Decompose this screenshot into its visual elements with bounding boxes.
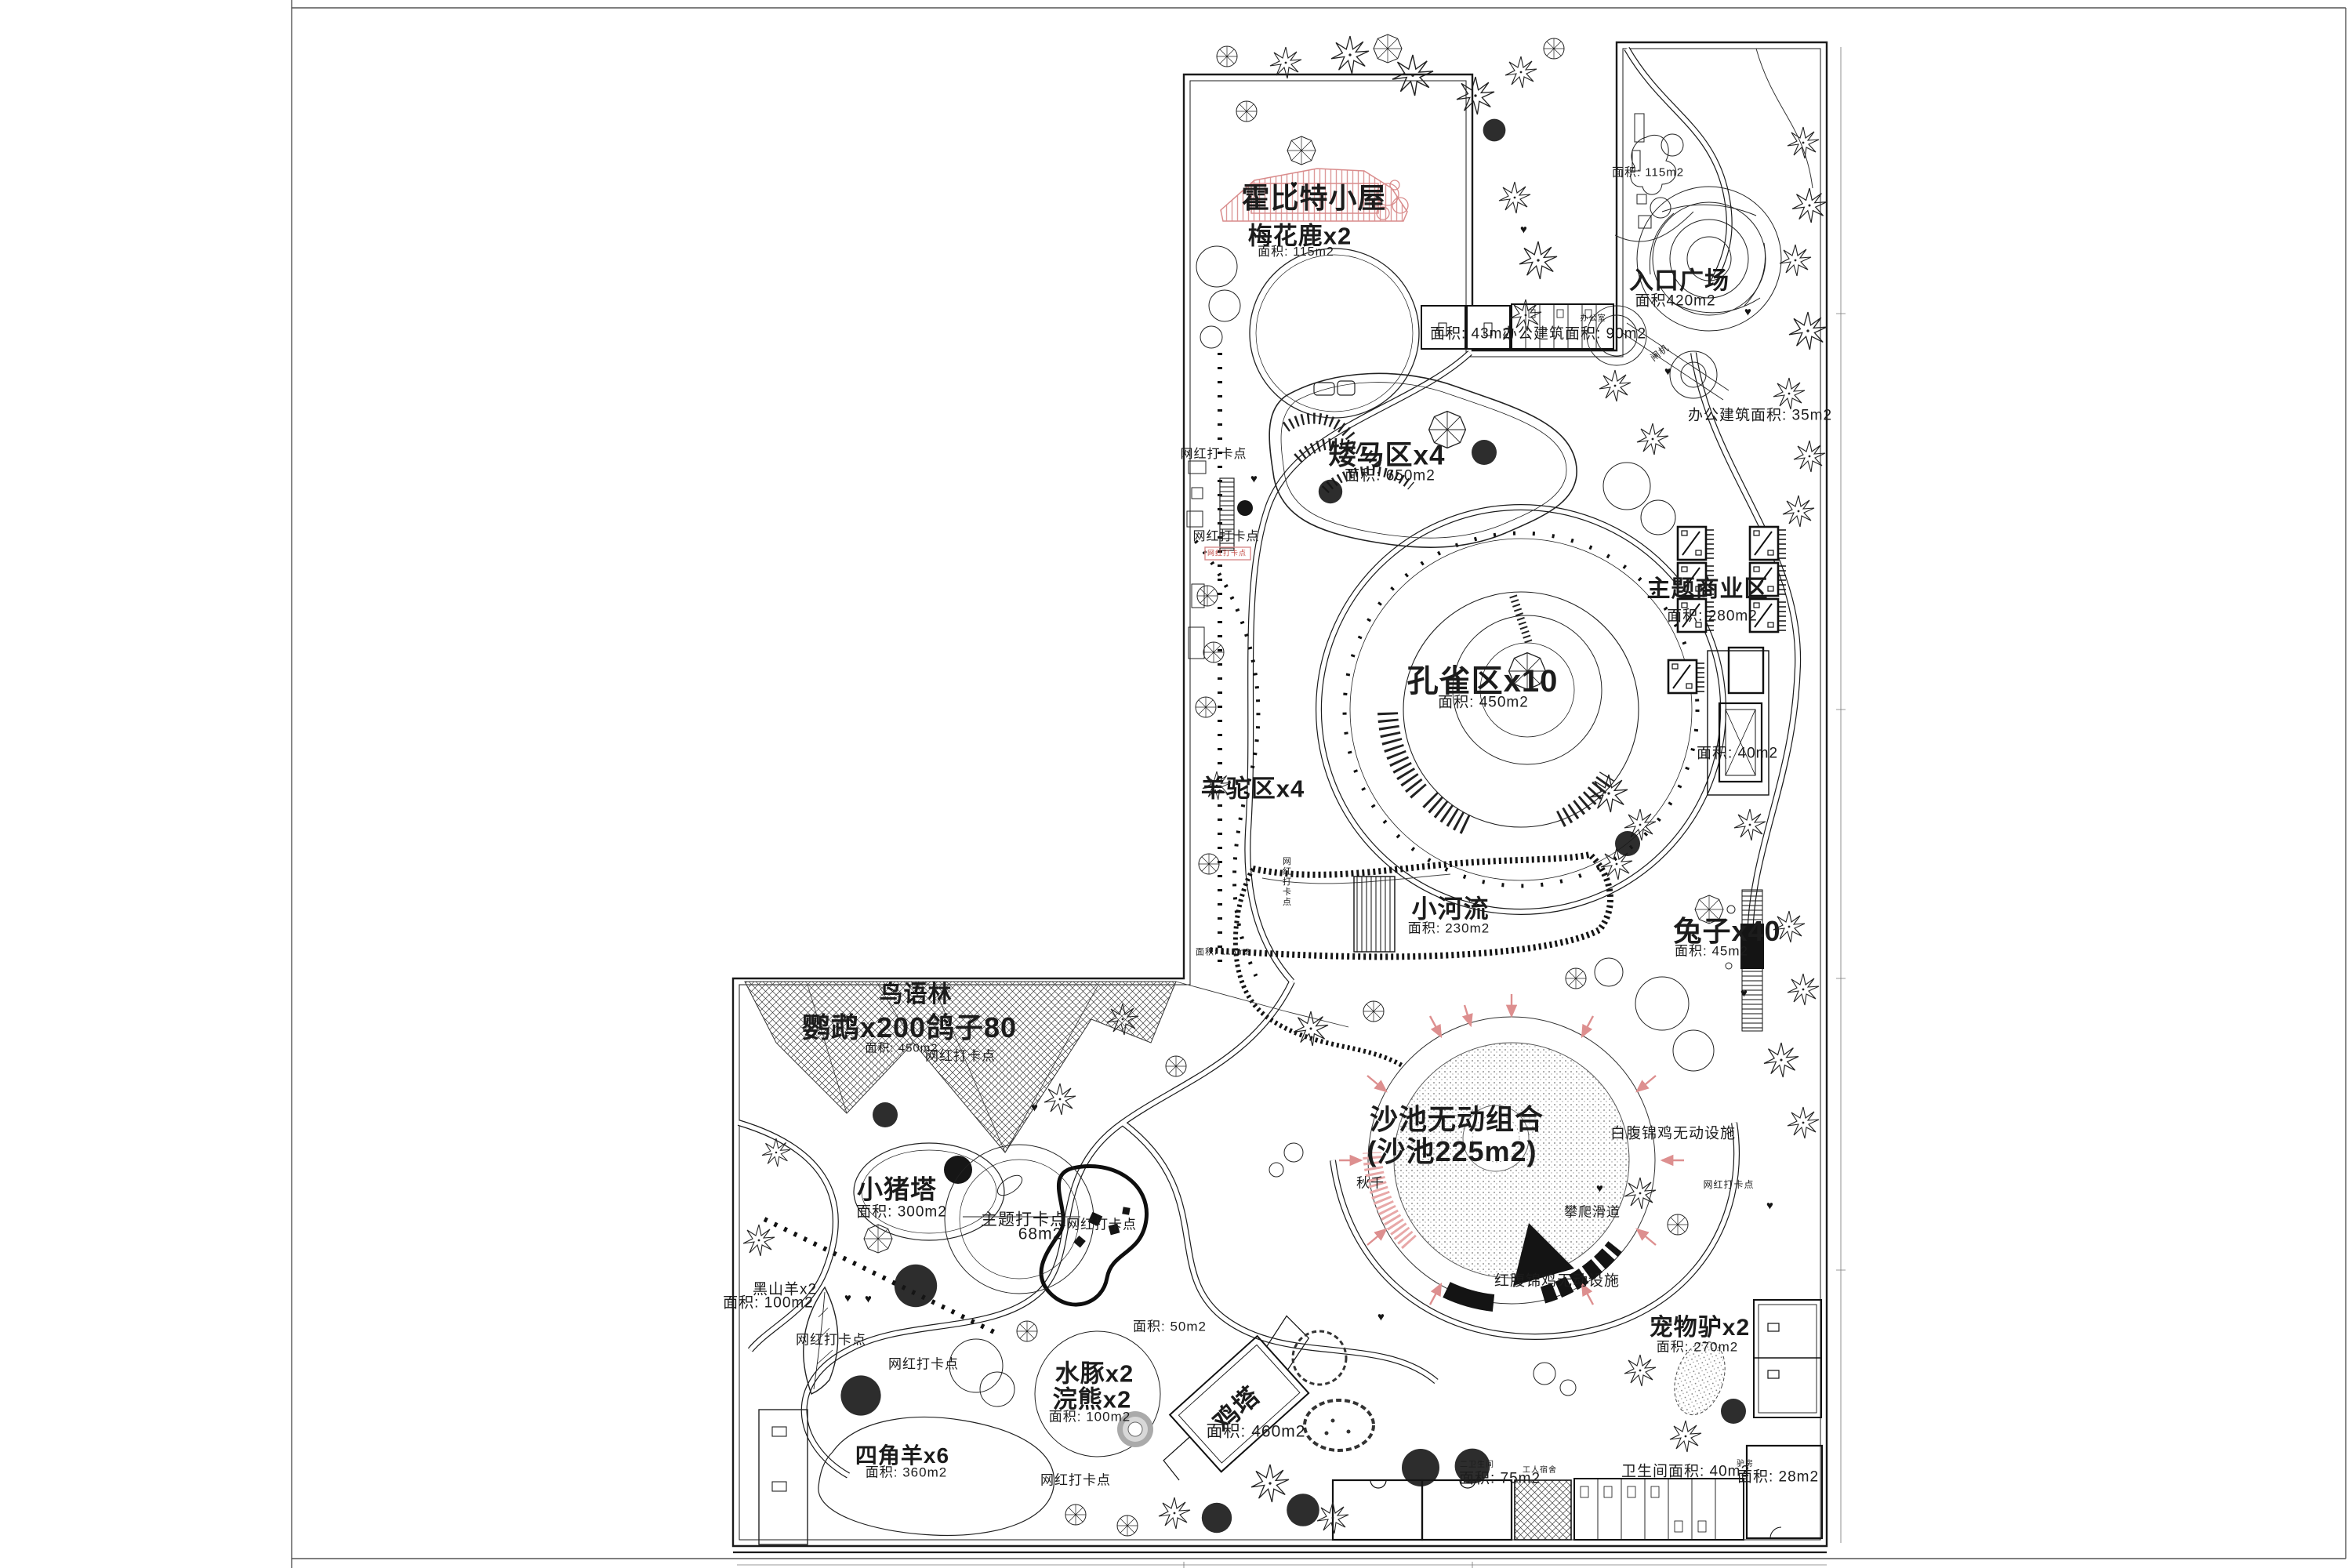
drawing-sheet: 霍比特小屋梅花鹿x2面积: 115m2面积: 115m2入口广场面积420m2面… (0, 0, 2352, 1568)
kidney-pond (1041, 1166, 1147, 1305)
sand-pit (1339, 994, 1684, 1305)
topright-restroom (1631, 114, 1683, 228)
bird-forest-canopy (745, 982, 1348, 1152)
capybara-pond (1035, 1331, 1160, 1457)
leaf-feature (804, 1287, 838, 1394)
left-strip-structures (1187, 461, 1250, 659)
sika-deer-pen (1250, 249, 1419, 490)
trees (743, 34, 1827, 1536)
small-river (1207, 855, 1610, 1066)
roads (739, 49, 1813, 1475)
sheet-frame (292, 0, 2346, 1568)
chicken-tower-building (1142, 1312, 1336, 1497)
black-goat-pen (759, 1410, 808, 1544)
four-horn-sheep-pen (818, 1417, 1054, 1536)
rabbit-zone-structure (1726, 890, 1764, 1031)
river-bridge (1354, 877, 1395, 952)
dimension-lines (737, 47, 1846, 1568)
site-plan-linework (0, 0, 2352, 1568)
pony-zone (1269, 373, 1577, 547)
pet-donkey-area (1666, 1300, 1821, 1421)
hobbit-house-hatch (1221, 169, 1408, 221)
peacock-zone (1350, 539, 1692, 880)
